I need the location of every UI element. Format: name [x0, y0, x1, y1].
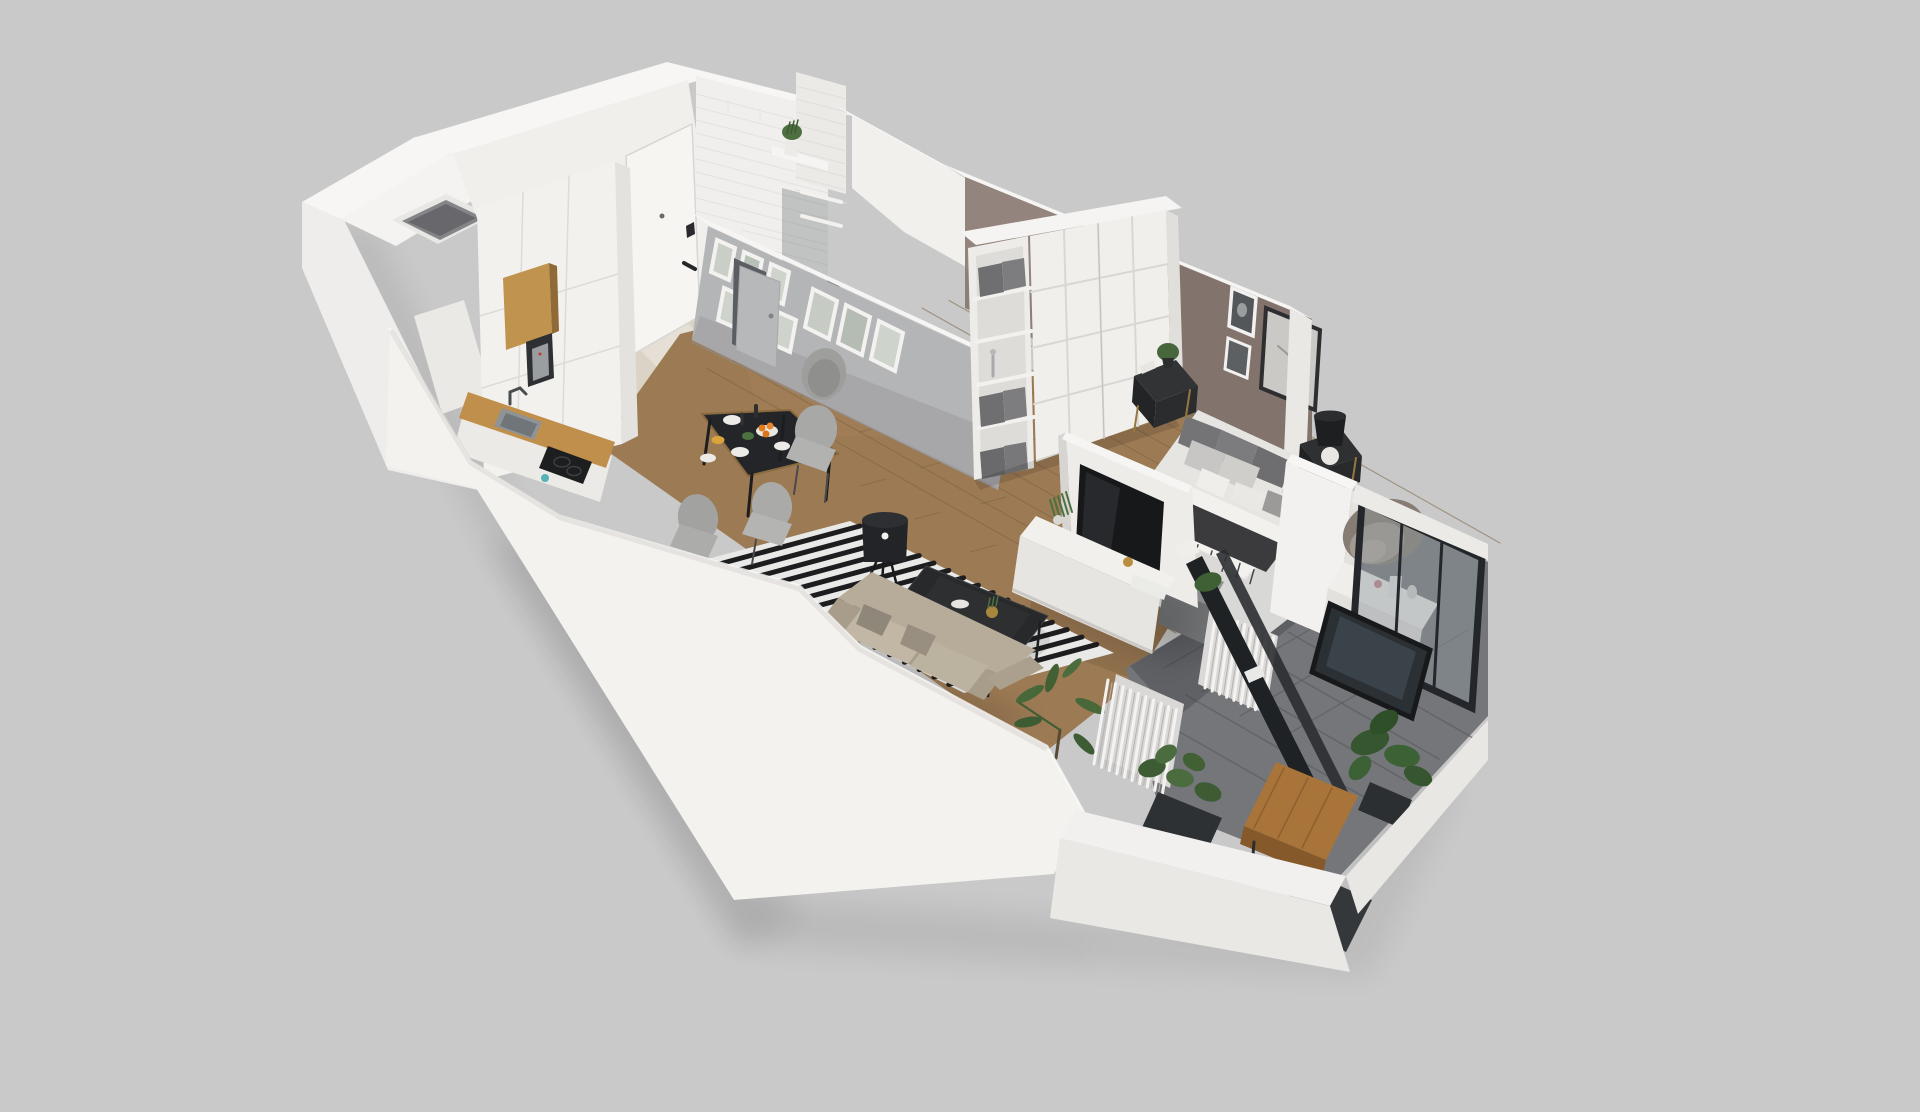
table-lamp-sphere-base: [1321, 447, 1339, 465]
table-lamp-top: [1314, 411, 1346, 422]
scene-svg: [40, 16, 1920, 1096]
storage-box-4: [1003, 387, 1027, 421]
gallery-frame-1: [711, 240, 735, 280]
tv-cabinet-candle: [1123, 557, 1133, 567]
plate-2: [731, 447, 749, 457]
portrait-frame-small-2: [1225, 338, 1250, 378]
coffee-machine-light: [539, 353, 542, 356]
orange-3: [763, 431, 770, 438]
storage-box-3: [979, 392, 1005, 427]
portrait-art-blob: [1237, 303, 1247, 317]
gallery-frame-9: [871, 321, 903, 371]
tv-cabinet-plant-pot: [1053, 515, 1063, 525]
orange-1: [759, 425, 766, 432]
table-greenery: [742, 432, 754, 440]
bathroom-plant-pot: [784, 140, 799, 157]
gallery-frame-7: [805, 289, 837, 339]
bathroom-door: [736, 266, 780, 368]
entry-door: [626, 124, 700, 354]
floorplan-figure: [40, 16, 1920, 1096]
plate-3: [700, 454, 716, 463]
storage-box-2: [1002, 258, 1026, 291]
storage-box-1: [978, 263, 1004, 297]
nightstand-plant-pot: [1162, 358, 1174, 368]
floor-lamp-bulb: [882, 533, 889, 540]
floor-lamp-shade-top: [862, 512, 908, 528]
entry-door-peephole: [660, 214, 665, 219]
bathroom-tiled-wall-right: [796, 72, 846, 194]
bathroom-door-handle: [769, 314, 774, 319]
apartment-render: [40, 16, 1920, 1096]
orange-2: [767, 423, 774, 430]
plate-4: [774, 442, 790, 451]
gold-bowl: [712, 436, 725, 444]
teal-mug: [541, 474, 549, 482]
plate-1: [723, 415, 741, 425]
coffee-table-dish: [951, 600, 969, 609]
shelf-figurine-head: [990, 349, 996, 355]
coffee-machine-front: [532, 343, 549, 381]
gallery-frame-8: [838, 305, 870, 355]
